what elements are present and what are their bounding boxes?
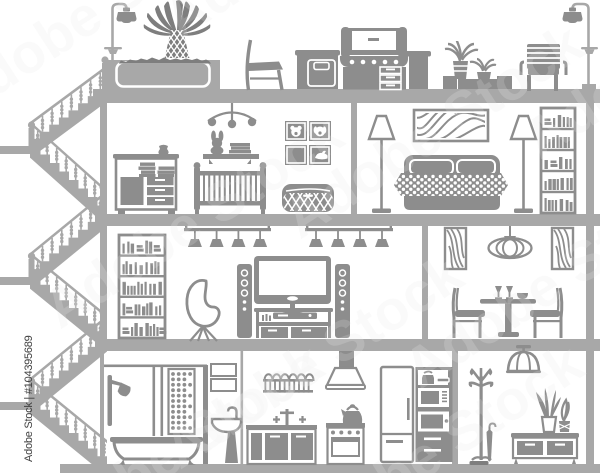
svg-text:Adobe Stock: Adobe Stock (152, 0, 474, 50)
svg-text:Adobe Stock | #104395689: Adobe Stock | #104395689 (23, 335, 35, 462)
